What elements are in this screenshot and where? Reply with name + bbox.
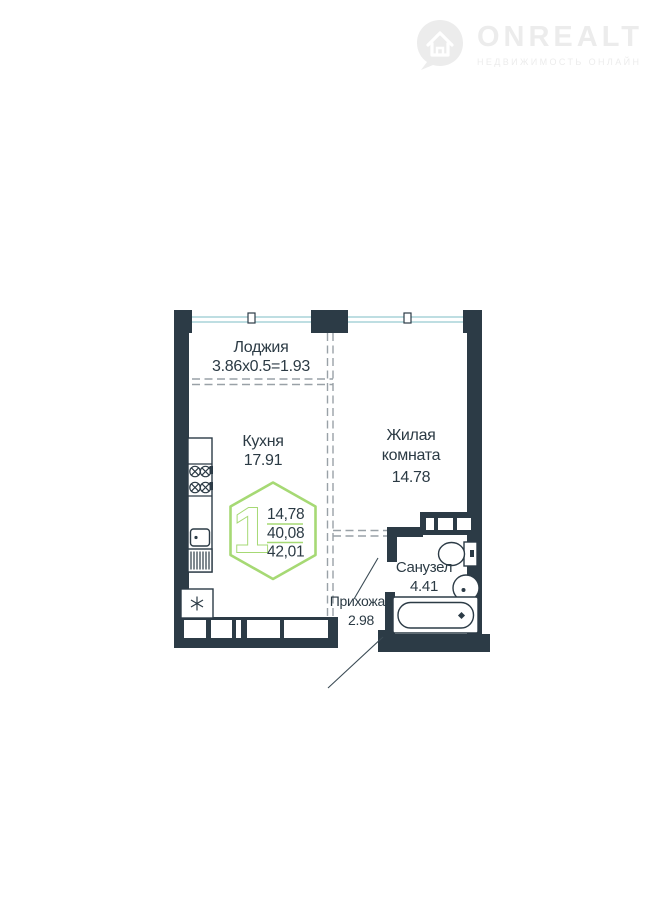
vent-opening [438,518,453,530]
room-area-bathroom: 4.41 [410,578,438,595]
room-area-kitchen: 17.91 [244,452,283,469]
badge-rooms-count: 1 [233,494,269,566]
room-label-living-2: комната [382,447,441,464]
vent-opening [457,518,471,530]
window-divider [248,313,255,323]
room-label-living-1: Жилая [386,427,435,444]
area-badge: 1 14,78 40,08 42,01 [231,483,316,580]
room-label-hallway: Прихожая [330,593,392,609]
room-dims-loggia: 3.86x0.5=1.93 [212,358,310,375]
cabinet-opening [247,620,280,638]
wall-bottom-bathroom [378,634,490,652]
cabinet-opening [184,620,206,638]
cabinet-opening [284,620,328,638]
room-label-kitchen: Кухня [242,433,283,450]
room-labels: Лоджия 3.86x0.5=1.93 Кухня 17.91 Жилая к… [212,339,452,628]
vent-opening [426,518,434,530]
badge-living-area: 14,78 [267,506,304,523]
room-area-living: 14.78 [392,469,431,486]
cabinet-opening [236,620,241,638]
kitchen-sink-icon [191,529,210,546]
cabinet-opening [211,620,232,638]
fridge-icon [181,589,213,618]
wall-top-left-block [174,310,192,333]
badge-area-no-loggia: 40,08 [267,525,304,542]
window-divider [404,313,411,323]
dashed-partitions [192,333,387,617]
wall-bathroom-left-upper [387,533,397,562]
room-label-bathroom: Санузел [396,559,452,576]
badge-total-area: 42,01 [267,544,304,561]
room-area-hallway: 2.98 [348,612,375,628]
room-label-loggia: Лоджия [234,339,289,356]
floor-plan: Лоджия 3.86x0.5=1.93 Кухня 17.91 Жилая к… [0,0,657,910]
washing-machine-icon [188,549,212,572]
bathtub-icon [393,597,478,633]
wall-top-pillar [311,310,348,333]
